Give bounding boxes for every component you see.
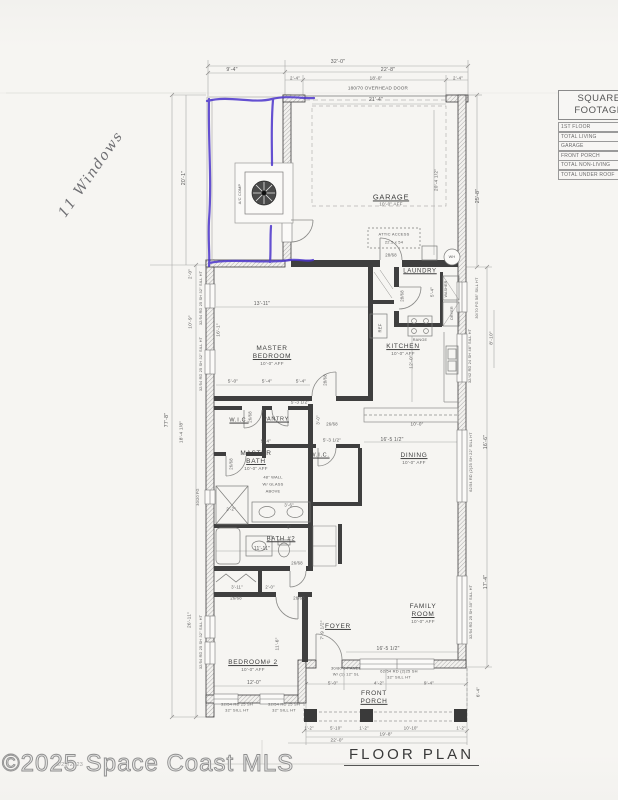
room-name-line: MASTER (240, 450, 271, 458)
dim-label: 10'-10" (404, 726, 418, 731)
dim-label: REF (378, 324, 383, 333)
room-name-line: FOYER (325, 623, 351, 631)
dim-label: 20'-1" (181, 171, 187, 185)
dim-label: 25'-8" (475, 189, 481, 203)
dim-label: 16'-1" (217, 323, 222, 336)
room-name-line: FAMILY (410, 603, 437, 611)
room-ceiling-height: 10'-0" AFF (410, 619, 437, 625)
room-name-line: PANTRY (263, 417, 289, 424)
sqft-title-line2: FOOTAGE (559, 105, 618, 117)
dim-label: 26/68 (230, 596, 241, 601)
dim-label: 30/70 FG 58" SILL HT (475, 277, 479, 318)
dim-label: ATTIC ACCESS (379, 232, 410, 237)
dim-label: 5'-4" (261, 439, 271, 444)
room-name-line: KITCHEN (386, 343, 419, 351)
dim-label: 2'-2" (226, 507, 235, 512)
dim-label: 32" SILL HT (387, 675, 411, 680)
dim-label: 1'-2" (359, 726, 368, 731)
room-name-line: BEDROOM (253, 353, 292, 361)
dim-label: 3'-0" (316, 415, 321, 424)
dim-label: 32/54 RD 25 SH 32" SILL HT (199, 271, 203, 325)
room-name-line: BATH (240, 458, 271, 466)
dim-label: 48" WALL (263, 475, 282, 480)
room-name-line: FRONT (361, 690, 388, 698)
dim-label: 1'-2" (456, 726, 465, 731)
dim-label: 32" SILL HT (272, 708, 296, 713)
dim-label: 180/70 OVERHEAD DOOR (348, 86, 408, 91)
dim-label: 30/20 FG (196, 488, 200, 505)
dim-label: 32/42 RD 24 SH 46" SILL HT (468, 329, 472, 383)
dim-label: ABOVE (266, 489, 281, 494)
dim-label: 18'-0" (370, 76, 383, 81)
dim-label: 22.5 x 54 (385, 240, 403, 245)
dim-label: 32'-0" (331, 59, 345, 65)
dim-label: 5'-0" (328, 681, 338, 686)
dim-label: 6'-4" (476, 687, 481, 697)
dim-label: 62/54 RD (2)25 SH 22" SILL HT (469, 432, 473, 492)
dim-label: 16'-5 1/2" (380, 437, 403, 443)
dim-label: 30/80 6-PANEL (331, 666, 361, 671)
room-name-line: GARAGE (373, 192, 409, 201)
dim-label: 5'-4" (430, 287, 435, 297)
dim-label: WH (449, 255, 456, 259)
dim-label: 2'-4" (453, 76, 463, 81)
dim-label: DRYER (450, 306, 454, 320)
dim-label: 11'-6" (276, 637, 281, 650)
room-label-master-bath: MASTERBATH10'-0" AFF (240, 450, 271, 472)
room-name-line: DINING (401, 452, 428, 460)
room-name-line: MASTER (253, 345, 292, 353)
dim-label: 10'-9" (189, 315, 194, 328)
dim-label: 11'-11" (254, 546, 270, 552)
dim-label: 5'-3 1/2" (291, 400, 309, 405)
dim-label: 5' (287, 525, 291, 530)
room-ceiling-height: 10'-0" AFF (386, 351, 419, 357)
dim-label: 9'-4" (226, 67, 237, 73)
dim-label: A/C COMP (238, 184, 242, 204)
room-label-dining: DINING10'-0" AFF (401, 452, 428, 466)
dim-label: 32/54 RD 25 SH (268, 702, 300, 707)
dim-label: 28/68 (385, 253, 396, 258)
dim-label: 4'-2" (374, 681, 384, 686)
room-label-laundry: LAUNDRY (403, 268, 436, 276)
sqft-title-line1: SQUARE (559, 93, 618, 105)
dim-label: 28/68 (323, 374, 328, 385)
room-ceiling-height: 10'-0" AFF (228, 667, 278, 673)
room-name-line: W.I.C. (310, 453, 329, 460)
plan-labels-layer: 32'-0"9'-4"22'-8"2'-4"18'-0"2'-4"180/70 … (0, 0, 618, 800)
room-label-bath-2: BATH #2 (267, 536, 296, 544)
dim-label: 2'-0" (265, 585, 274, 590)
dim-label: 26/68 (293, 596, 304, 601)
room-ceiling-height: 10'-0" AFF (373, 202, 409, 208)
dim-label: 62/54 RD (2)25 SH (380, 669, 417, 674)
dim-label: 32/54 RD 25 SH 32" SILL HT (199, 615, 203, 669)
dim-label: RANGE (413, 338, 428, 342)
dim-label: 9'-4" (424, 681, 434, 686)
dim-label: 20'-4 1/2" (435, 169, 440, 191)
sqft-table-row: TOTAL UNDER ROOF (558, 170, 618, 180)
dim-label: 28/68 (400, 290, 405, 301)
dim-label: 26/68 (229, 458, 234, 469)
room-ceiling-height: 10'-0" AFF (253, 361, 292, 367)
room-label-bedroom-2: BEDROOM# 210'-0" AFF (228, 659, 278, 673)
dim-label: WASHER (444, 281, 448, 298)
dim-label: 32/54 RD 25 SH 30" SILL HT (469, 585, 473, 639)
dim-label: 26'-11" (188, 612, 193, 628)
drawing-title: FLOOR PLAN (344, 746, 479, 766)
room-name-line: BEDROOM# 2 (228, 659, 278, 667)
room-ceiling-height: 10'-0" AFF (401, 460, 428, 466)
dim-label: W/ GLASS (263, 482, 284, 487)
dim-label: 22'-0" (331, 738, 344, 743)
dim-label: 2'-0" (188, 269, 193, 279)
dim-label: 16'-5 1/2" (376, 646, 399, 652)
dim-label: 21'-4" (369, 97, 383, 103)
room-label-w-i-c-: W.I.C. (229, 418, 248, 425)
sqft-table-row: TOTAL NON-LIVING (558, 160, 618, 170)
room-label-kitchen: KITCHEN10'-0" AFF (386, 343, 419, 357)
room-name-line: BATH #2 (267, 536, 296, 544)
room-label-pantry: PANTRY (263, 417, 289, 424)
dim-label: 32/54 RD 25 SH 32" SILL HT (199, 337, 203, 391)
scanned-floor-plan-page: 32'-0"9'-4"22'-8"2'-4"18'-0"2'-4"180/70 … (0, 0, 618, 800)
room-name-line: LAUNDRY (403, 268, 436, 276)
room-name-line: PORCH (361, 698, 388, 706)
dim-label: 12'-0" (410, 355, 415, 368)
room-name-line: ROOM (410, 611, 437, 619)
dim-label: 18'-4 1/8" (180, 421, 185, 443)
dim-label: 5'-3 1/2" (323, 438, 341, 443)
mls-watermark: ©2025 Space Coast MLS (2, 750, 294, 778)
dim-label: 26/68 (291, 561, 302, 566)
dim-label: 32" SILL HT (225, 708, 249, 713)
square-footage-rows: 1ST FLOORTOTAL LIVINGGARAGEFRONT PORCHTO… (558, 122, 618, 180)
dim-label: 3'-11" (231, 585, 243, 590)
room-label-foyer: FOYER (325, 623, 351, 631)
dim-label: 5'-4" (296, 380, 307, 385)
dim-label: 12'-0" (247, 680, 261, 686)
room-label-w-i-c-: W.I.C. (310, 453, 329, 460)
square-footage-table-title: SQUARE FOOTAGE (558, 90, 618, 120)
dim-label: 19'-8" (380, 732, 393, 737)
room-label-front-porch: FRONTPORCH (361, 690, 388, 706)
dim-label: 5'-0" (228, 380, 239, 385)
square-footage-table: SQUARE FOOTAGE 1ST FLOORTOTAL LIVINGGARA… (558, 90, 618, 180)
dim-label: 10'-0" (411, 422, 424, 427)
dim-label: 26/68 (326, 422, 337, 427)
dim-label: 77'-8" (164, 413, 170, 427)
dim-label: W/ (1) 12" SL (333, 672, 359, 677)
dim-label: 2'-4" (290, 76, 300, 81)
dim-label: 1'-2" (304, 726, 313, 731)
dim-label: 8'-10" (490, 331, 495, 344)
dim-label: 5'-10" (330, 726, 342, 731)
dim-label: 32/54 RD 25 SH (221, 702, 253, 707)
dim-label: 17'-4" (483, 575, 489, 589)
room-label-family-room: FAMILYROOM10'-0" AFF (410, 603, 437, 625)
room-label-master-bedroom: MASTERBEDROOM10'-0" AFF (253, 345, 292, 367)
dim-label: 5'-4" (262, 380, 273, 385)
dim-label: 16'-6" (483, 435, 489, 449)
room-label-garage: GARAGE10'-0" AFF (373, 192, 409, 207)
dim-label: 13'-11" (254, 301, 271, 307)
room-ceiling-height: 10'-0" AFF (240, 466, 271, 472)
dim-label: 3'-6" (284, 503, 293, 508)
room-name-line: W.I.C. (229, 418, 248, 425)
dim-label: 22'-8" (381, 67, 395, 73)
